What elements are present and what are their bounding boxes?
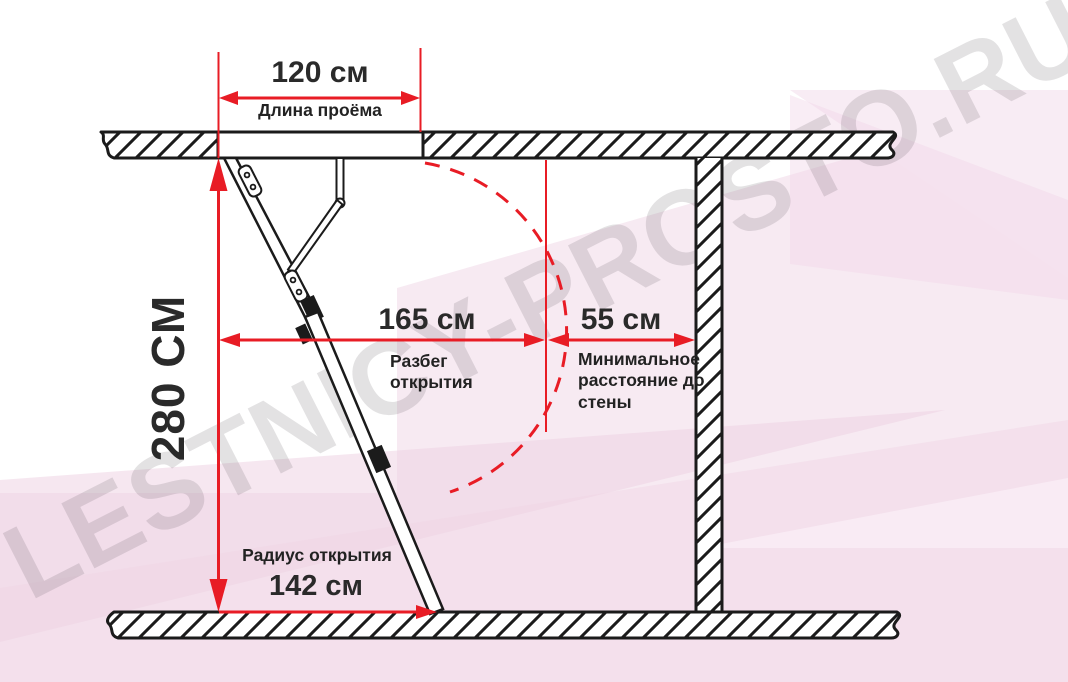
dim-span-label: Разбег открытия: [390, 351, 502, 394]
dim-opening-length-value: 120 см: [219, 56, 421, 90]
ladder-strut: [288, 200, 343, 274]
floor-slab: [108, 612, 900, 638]
dim-radius-value: 142 см: [226, 570, 406, 603]
arrowhead-left-icon: [219, 333, 240, 347]
dim-wall-distance-value: 55 см: [553, 303, 689, 337]
ladder-bracket-lower: [283, 269, 309, 303]
ceiling-slab: [101, 132, 896, 158]
dim-height-value: 280 СМ: [141, 268, 191, 488]
dim-span-value: 165 см: [332, 303, 522, 337]
dim-opening-length-label: Длина проёма: [219, 100, 421, 121]
arrowhead-right-icon: [524, 333, 545, 347]
dim-radius-label: Радиус открытия: [232, 545, 402, 566]
dim-wall-distance-label: Минимальное расстояние до стены: [578, 349, 718, 413]
arrowhead-up-icon: [210, 158, 228, 191]
arrowhead-down-icon: [210, 579, 228, 612]
ceiling-opening: [218, 132, 423, 158]
ladder-hanger: [337, 158, 344, 200]
